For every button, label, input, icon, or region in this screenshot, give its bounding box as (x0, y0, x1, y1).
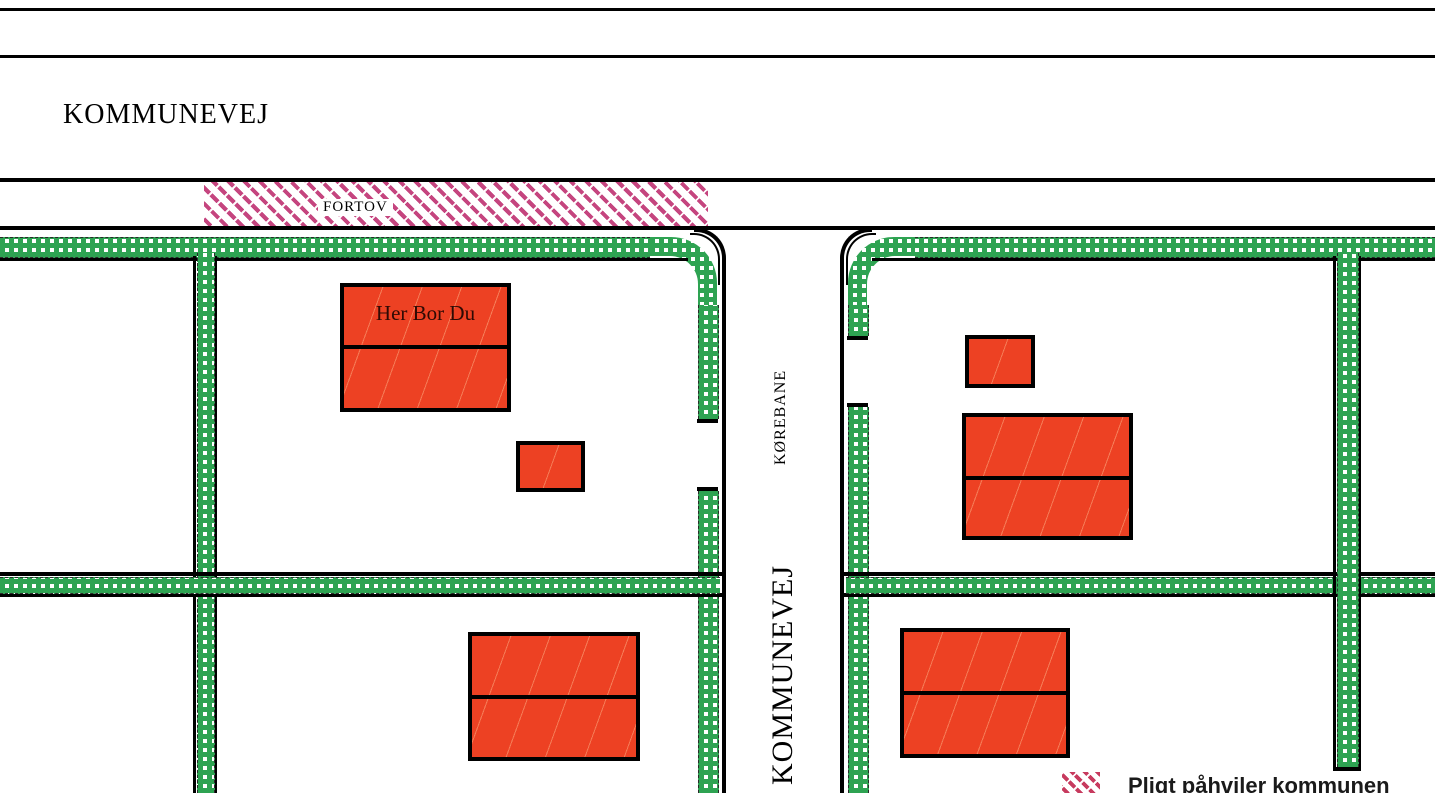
vertical-road-west-curb (722, 286, 726, 793)
vertical-road-label: KOMMUNEVEJ (766, 560, 800, 785)
building-right-north (962, 413, 1133, 540)
hedge-band-left-vertical (197, 253, 215, 793)
hedge-roadside-right-upper (848, 305, 869, 336)
legend-duty-hatch-icon (1062, 772, 1100, 793)
hedge-band-right-vertical-cap (1333, 767, 1361, 771)
building-left-shed (516, 441, 585, 492)
hedge-band-left-middle (0, 577, 720, 594)
top-road-north-inner-line (0, 55, 1435, 58)
hedge-roadside-right-lower (848, 407, 869, 793)
hedge-band-right-vertical (1337, 253, 1359, 767)
building-right-south-divider (903, 691, 1067, 695)
top-road-north-outer-line (0, 8, 1435, 11)
sidewalk-label: FORTOV (318, 199, 393, 216)
right-plot-boundary-west-line (1333, 256, 1336, 771)
roadway-label: KØREBANE (772, 355, 790, 465)
vertical-road-east-curb (840, 286, 844, 793)
building-left-south-divider (471, 695, 637, 699)
plot-line-below-top-hedge-left (0, 258, 688, 261)
building-her-bor-du-divider (343, 345, 508, 349)
left-mid-boundary-north-line (0, 572, 724, 576)
municipal-road-map: KOMMUNEVEJ FORTOV Her Bor D (0, 0, 1435, 793)
hedge-roadside-left-lower (698, 491, 719, 793)
hedge-band-top-left (0, 237, 655, 258)
building-right-south (900, 628, 1070, 758)
your-home-label: Her Bor Du (344, 301, 507, 326)
top-road-label: KOMMUNEVEJ (63, 99, 269, 131)
left-plot-boundary-west-line (193, 256, 196, 793)
sidewalk-hatch-area (204, 182, 708, 226)
sidewalk-south-line (0, 226, 1435, 230)
legend-duty-text: Pligt påhviler kommunen (1128, 773, 1390, 793)
hedge-roadside-left-upper-cap (697, 419, 718, 423)
building-her-bor-du: Her Bor Du (340, 283, 511, 412)
building-right-shed (965, 335, 1035, 388)
hedge-roadside-left-upper (698, 305, 719, 419)
building-left-south (468, 632, 640, 761)
building-right-north-divider (965, 476, 1130, 480)
hedge-roadside-right-upper-cap (847, 336, 868, 340)
